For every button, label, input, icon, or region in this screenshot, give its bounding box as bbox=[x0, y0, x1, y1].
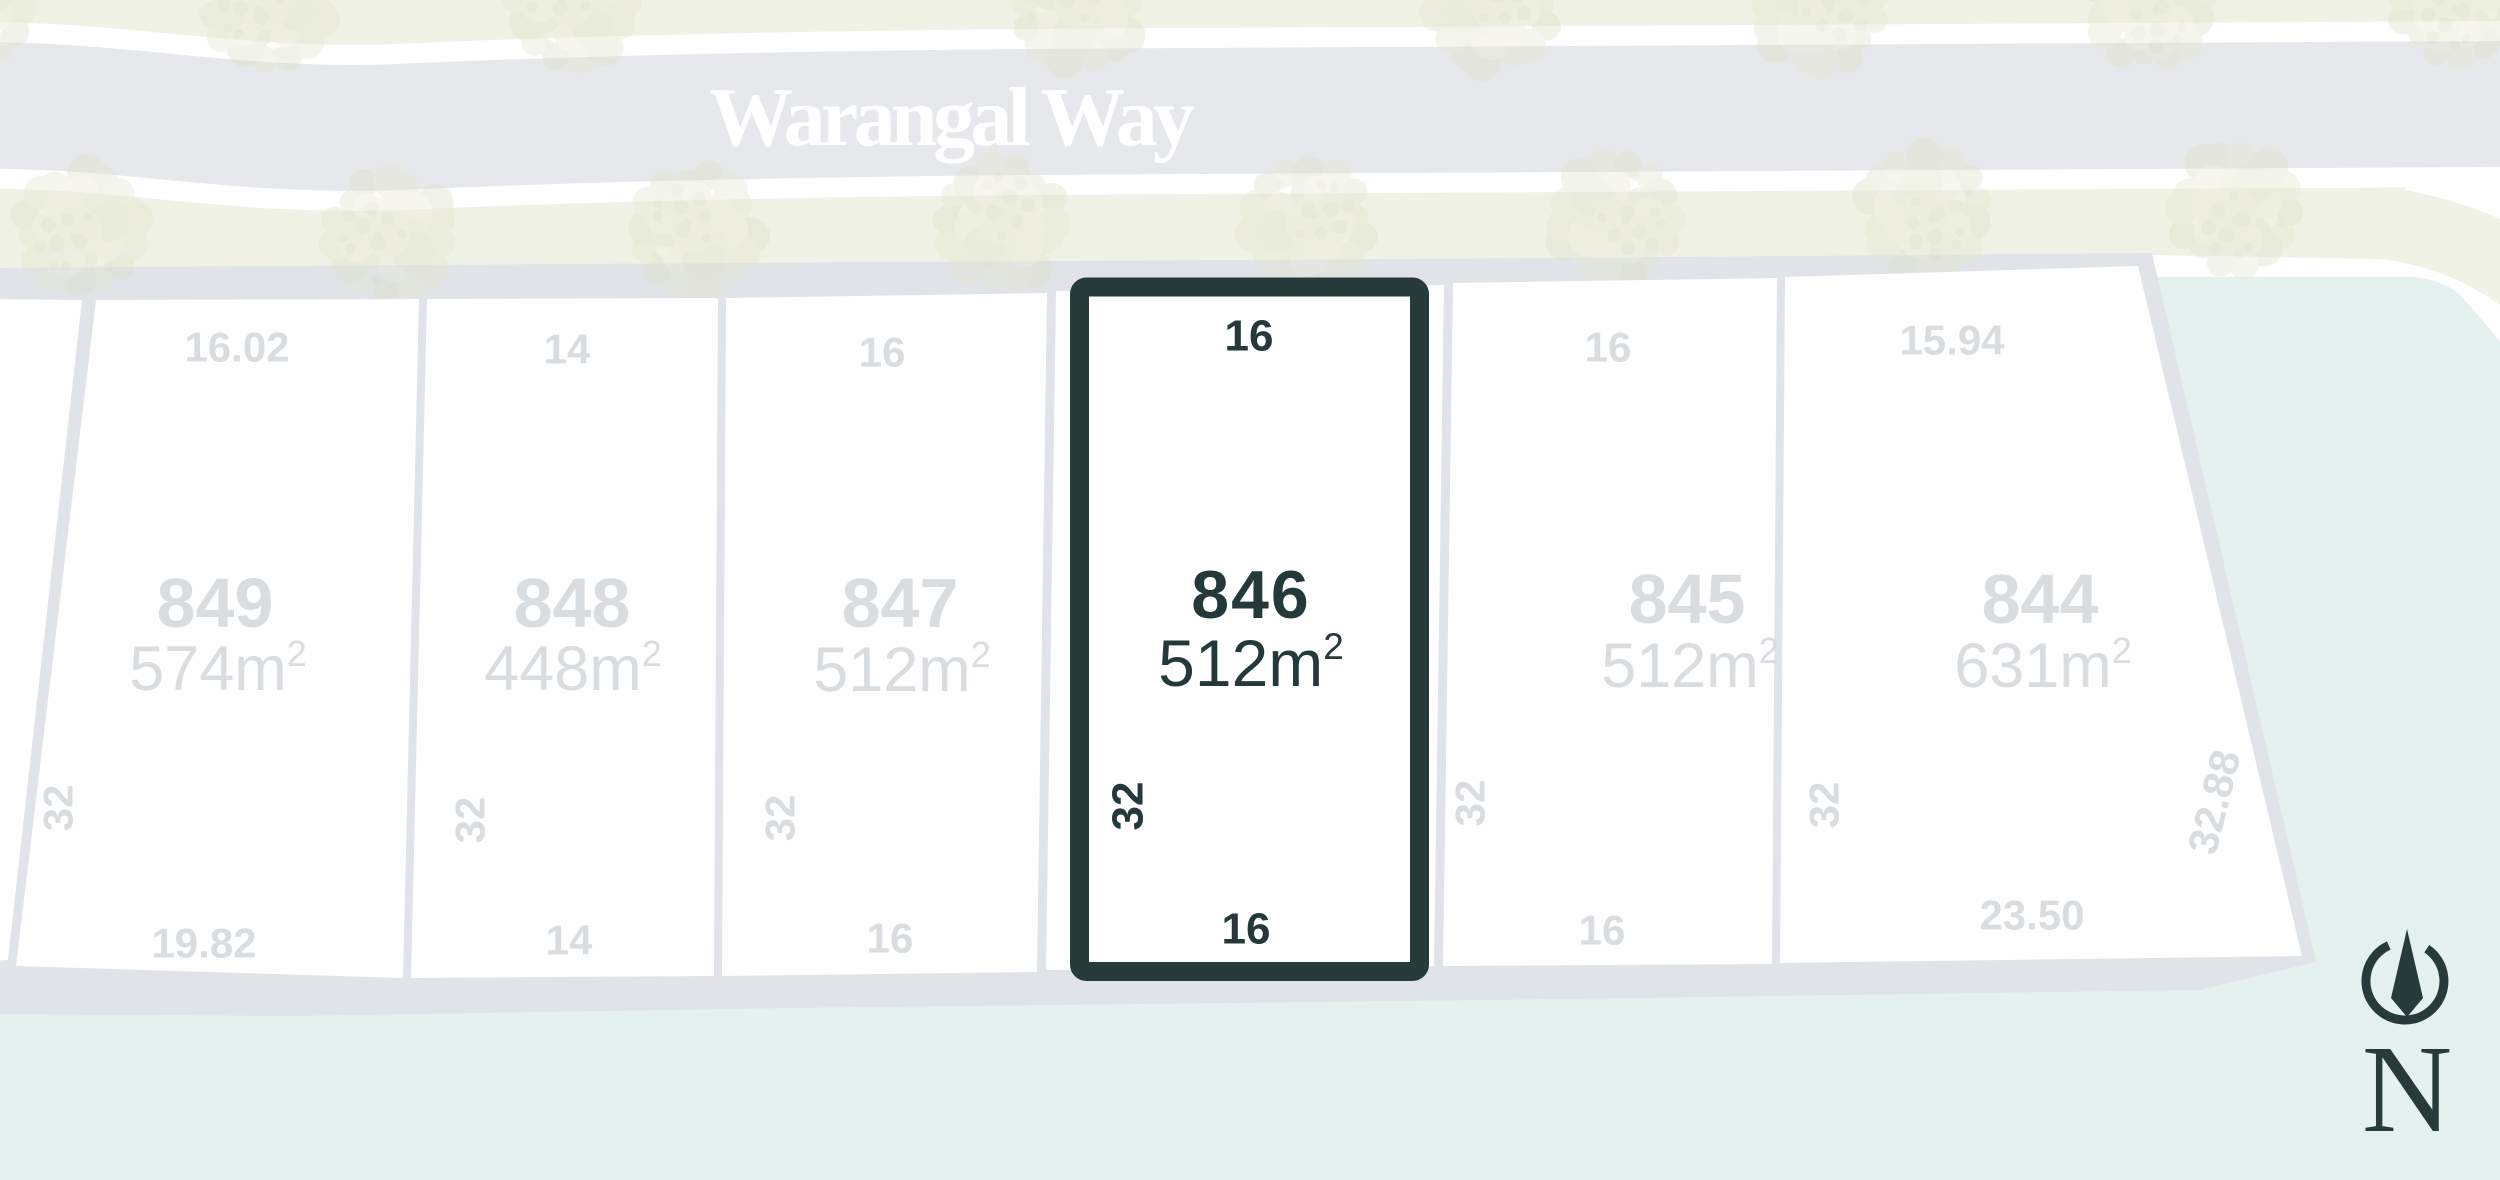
svg-text:32: 32 bbox=[1104, 782, 1153, 831]
svg-text:23.50: 23.50 bbox=[1979, 892, 2084, 939]
svg-text:32: 32 bbox=[1801, 782, 1848, 829]
svg-text:32: 32 bbox=[757, 795, 804, 842]
svg-text:16: 16 bbox=[1579, 907, 1626, 954]
svg-text:847: 847 bbox=[842, 564, 959, 642]
svg-text:Warangal Way: Warangal Way bbox=[709, 71, 1195, 164]
svg-text:N: N bbox=[2362, 1021, 2452, 1159]
svg-text:512m2: 512m2 bbox=[813, 634, 991, 706]
svg-text:16: 16 bbox=[1225, 312, 1274, 361]
svg-text:16: 16 bbox=[867, 915, 914, 962]
svg-text:16: 16 bbox=[1222, 905, 1271, 954]
svg-text:448m2: 448m2 bbox=[484, 633, 662, 705]
svg-text:574m2: 574m2 bbox=[129, 633, 307, 705]
svg-text:15.94: 15.94 bbox=[1899, 317, 2005, 364]
svg-text:19.82: 19.82 bbox=[151, 920, 256, 967]
svg-text:845: 845 bbox=[1629, 560, 1746, 638]
svg-text:16.02: 16.02 bbox=[184, 324, 289, 371]
svg-text:16: 16 bbox=[859, 329, 906, 376]
svg-text:631m2: 631m2 bbox=[1954, 630, 2132, 702]
svg-text:32: 32 bbox=[1447, 780, 1494, 827]
svg-text:512m2: 512m2 bbox=[1601, 630, 1779, 702]
svg-text:16: 16 bbox=[1585, 324, 1632, 371]
svg-text:848: 848 bbox=[514, 564, 631, 642]
svg-text:14: 14 bbox=[544, 326, 591, 373]
svg-text:849: 849 bbox=[157, 564, 274, 642]
svg-text:512m2: 512m2 bbox=[1158, 626, 1344, 701]
svg-text:14: 14 bbox=[546, 917, 593, 964]
svg-text:32: 32 bbox=[447, 797, 494, 844]
svg-text:846: 846 bbox=[1191, 557, 1310, 633]
svg-text:844: 844 bbox=[1982, 560, 2099, 638]
svg-text:32: 32 bbox=[35, 785, 82, 832]
